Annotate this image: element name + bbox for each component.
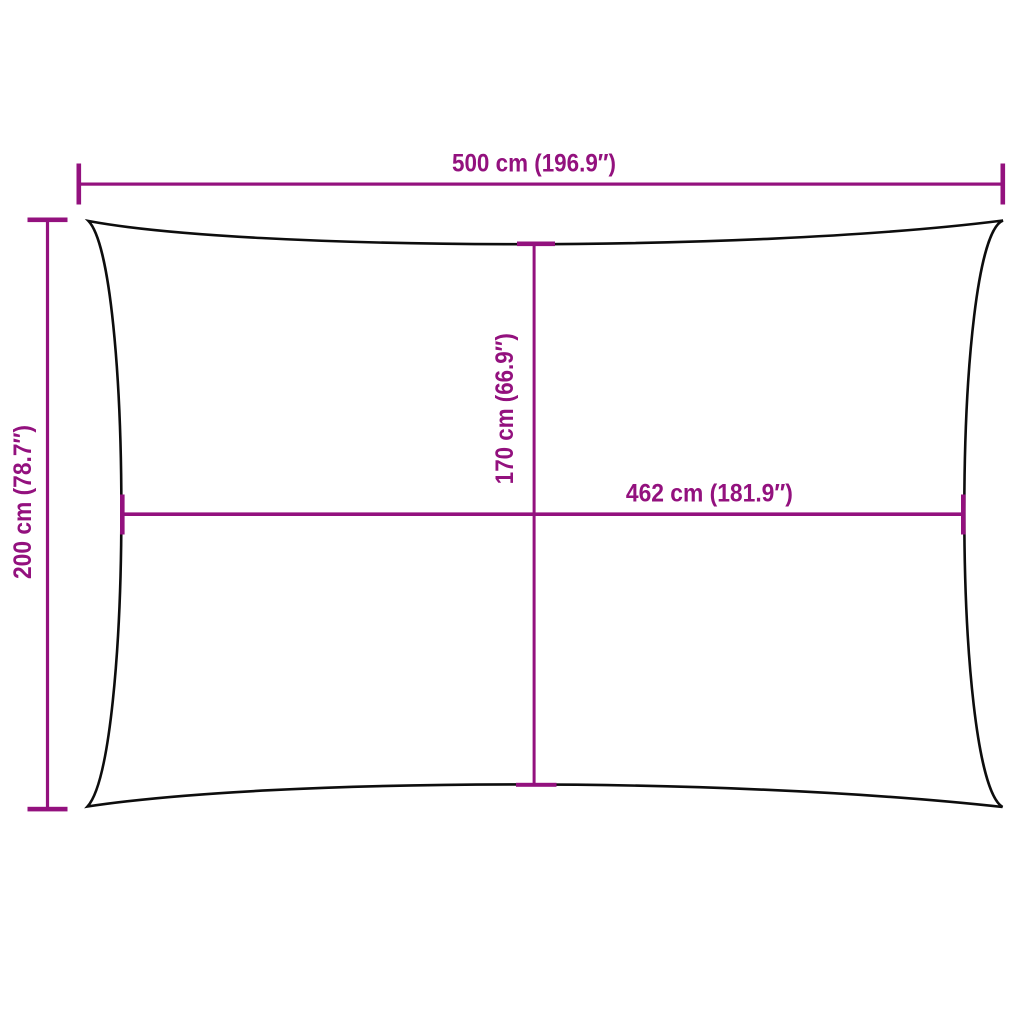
svg-text:462 cm (181.9″): 462 cm (181.9″) xyxy=(626,480,793,507)
svg-text:200 cm (78.7″): 200 cm (78.7″) xyxy=(10,425,37,579)
svg-text:170 cm (66.9″): 170 cm (66.9″) xyxy=(492,333,519,484)
svg-text:500 cm (196.9″): 500 cm (196.9″) xyxy=(452,150,616,177)
